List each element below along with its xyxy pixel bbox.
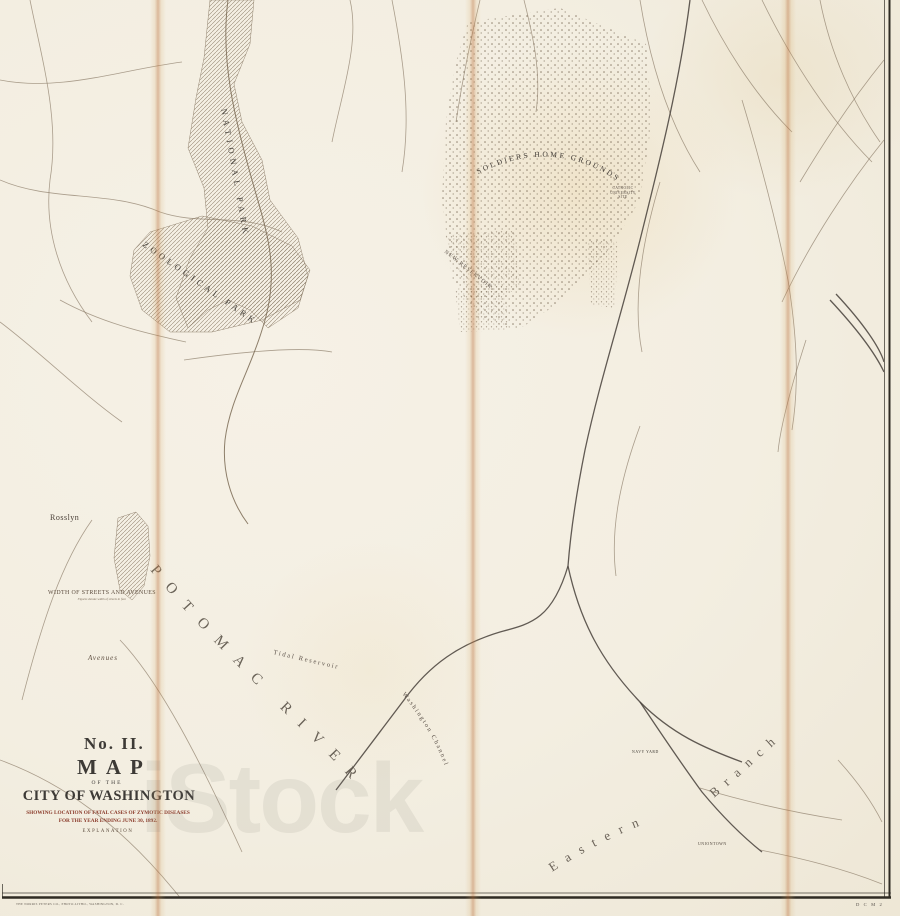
map-title-ofthe: OF THE (18, 781, 196, 787)
plate-code: D C M 2 (856, 903, 883, 908)
washington-channel-label: Washington Channel (401, 691, 450, 768)
branch-label: Branch (706, 728, 784, 800)
rosslyn-label: Rosslyn (50, 514, 79, 522)
navy-yard-label: NAVY YARD (632, 750, 659, 754)
svg-text:Eastern: Eastern (546, 811, 650, 874)
street-widths-caption: Figures denote width of streets in feet. (46, 597, 158, 601)
svg-text:POTOMAC RIVER: POTOMAC RIVER (147, 562, 369, 792)
catholic-university-label: CATHOLIC UNIVERSITY SITE (608, 186, 638, 200)
map-subtitle-2: FOR THE YEAR ENDING JUNE 30, 1892. (12, 819, 204, 825)
street-widths-heading: WIDTH OF STREETS AND AVENUES (46, 590, 158, 596)
map-title-city: CITY OF WASHINGTON (14, 789, 204, 804)
legend-heading: EXPLANATION (12, 829, 204, 834)
printer-imprint: THE NORRIS PETERS CO., PHOTO-LITHO., WAS… (16, 903, 124, 906)
map-sheet: POTOMAC RIVER Eastern Branch Washington … (0, 0, 900, 916)
map-number: No. II. (84, 735, 145, 753)
map-subtitle-1: SHOWING LOCATION OF FATAL CASES OF ZYMOT… (12, 811, 204, 817)
uniontown-label: UNIONTOWN (698, 842, 727, 846)
svg-text:Branch: Branch (706, 728, 784, 800)
avenues-heading: Avenues (26, 654, 180, 662)
svg-text:Washington Channel: Washington Channel (401, 691, 450, 768)
eastern-label: Eastern (546, 811, 650, 874)
street-widths-table: WIDTH OF STREETS AND AVENUES Figures den… (46, 590, 158, 601)
map-title-word: MAP (77, 756, 152, 778)
avenues-table: Avenues (26, 654, 180, 664)
potomac-river-label: POTOMAC RIVER (147, 562, 369, 792)
analostan-island (114, 512, 150, 600)
